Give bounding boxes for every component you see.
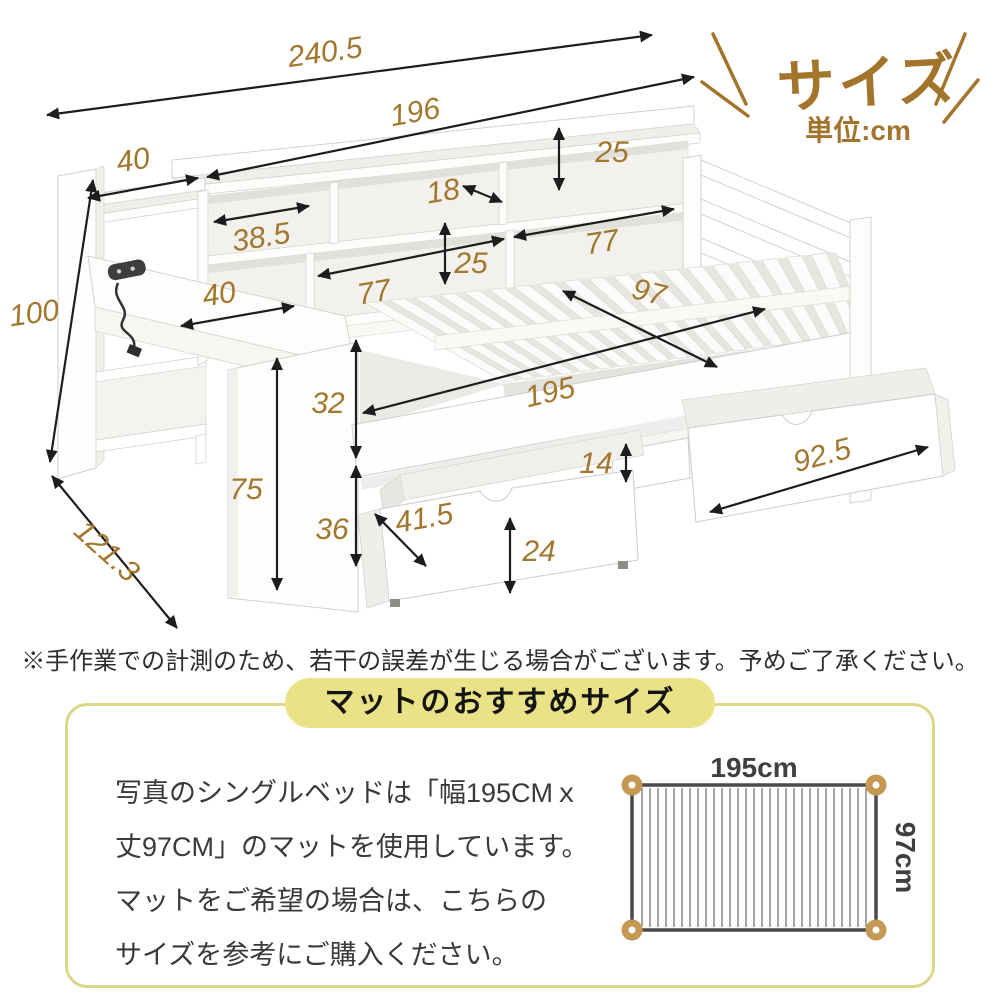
size-diagram-page: サイズ 単位:cm 240.519640251838.5257777971954…: [0, 0, 1000, 1000]
mat-corner-grommet-hole: [873, 927, 880, 934]
mat-size-diagram: 195cm97cm: [0, 0, 1000, 1000]
mat-height-label: 97cm: [890, 822, 921, 894]
mat-width-label: 195cm: [710, 752, 797, 783]
mat-corner-grommet-hole: [629, 782, 636, 789]
mat-corner-grommet-hole: [873, 782, 880, 789]
mat-corner-grommet-hole: [629, 927, 636, 934]
